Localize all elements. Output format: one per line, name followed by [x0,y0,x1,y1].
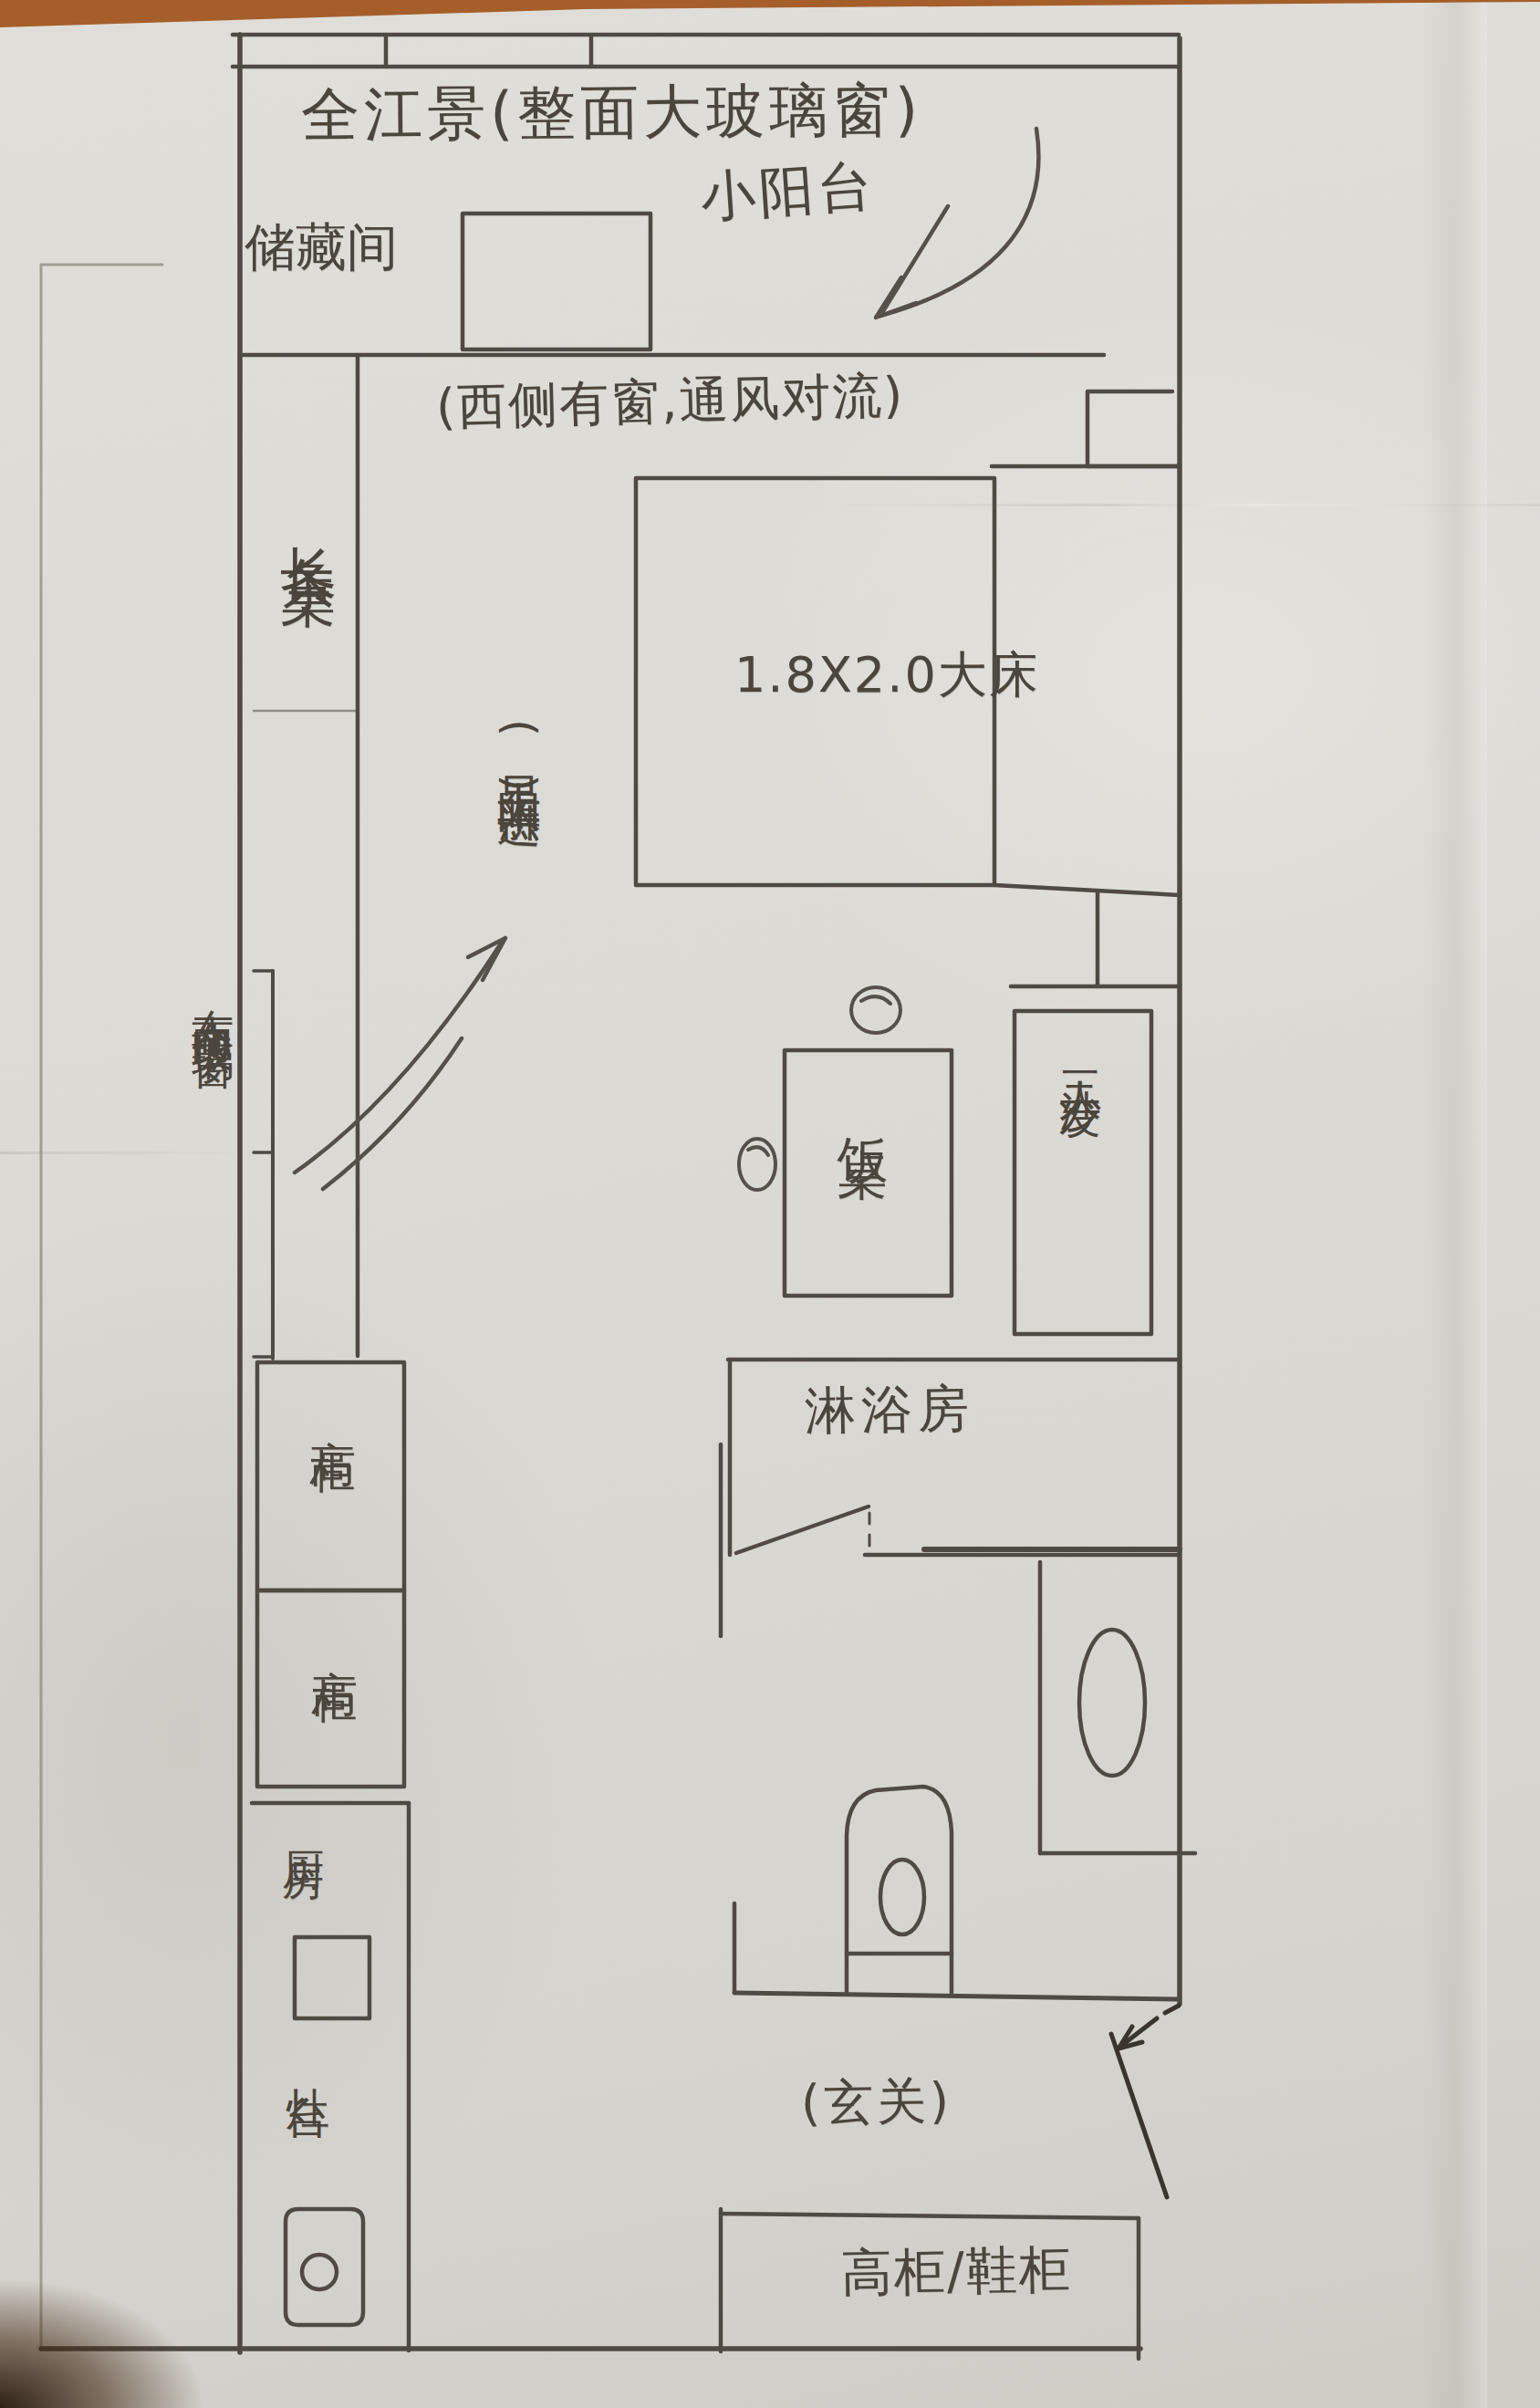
bed-label: 1.8X2.0大床 [734,642,1040,709]
river-view-window-label: 全江景(整面大玻璃窗) [301,70,923,155]
kitchen-sink-outline [295,1937,369,2018]
storage-box-outline [463,214,650,349]
entry-door-group [1111,2006,1179,2197]
shower-room-label: 淋浴房 [804,1374,974,1446]
balcony-arrow [876,129,1038,318]
table-shadow-corner [0,2281,201,2408]
long-table-label: 长条桌 [270,500,347,538]
west-window-note-label: (西侧有窗,通风对流) [435,362,905,441]
floorplan-drawing [0,0,1540,2408]
stool-top [851,987,900,1033]
photo-of-floorplan-sketch: { "meta": { "kind": "hand-drawn apartmen… [0,0,1540,2408]
dining-table-outline [785,1050,952,1296]
stove-label: 灶台 [279,2053,338,2068]
entry-cabinet-top [721,2214,1139,2218]
morning-sun-arrow [295,938,505,1189]
entry-cabinet-label: 高柜/鞋柜 [840,2236,1072,2309]
faint-outer-boundary-line [41,265,162,2349]
sofa-label: 三人沙发 [1053,1038,1109,1075]
sketch-paper: 全江景(整面大玻璃窗) 储藏间 小阳台 (西侧有窗,通风对流) 1.8X2.0大… [0,0,1540,2408]
morning-sun-note-label: (早上太阳照进) [491,719,549,797]
tall-cabinet-2-outline [257,1590,404,1787]
stool-left-scribble [748,1147,768,1155]
stove-outline [286,2209,363,2325]
washbasin-oval [880,1860,924,1934]
entry-arrow-strokes [1125,2006,1179,2043]
kitchen-label: 厨房 [276,1818,332,1829]
washstand-outline [847,1787,952,1993]
bedroom-bottom-wall [994,885,1180,895]
tall-cabinet-1-label: 高柜 [303,1403,364,1422]
stove-burner-circle [302,2255,337,2289]
tall-cabinet-2-label: 高柜 [305,1633,366,1652]
entry-label: (玄关) [800,2069,952,2138]
se-window-ticks [254,971,273,1357]
toilet-bowl-shape [1079,1630,1145,1776]
shower-door-leaf [736,1506,869,1553]
entry-top-wall [734,1993,1177,1999]
storage-room-label: 储藏间 [245,214,398,283]
dining-stools [739,987,900,1190]
stool-top-scribble [861,996,890,1004]
dining-table-label: 饭桌 [828,1097,898,1119]
tall-cabinet-1-outline [257,1362,404,1590]
southeast-glass-window-label: 东南向玻璃窗 [185,975,242,1018]
wall-niche-box [1087,391,1180,466]
entry-door-leaf [1111,2034,1167,2197]
small-balcony-label: 小阳台 [698,149,878,235]
